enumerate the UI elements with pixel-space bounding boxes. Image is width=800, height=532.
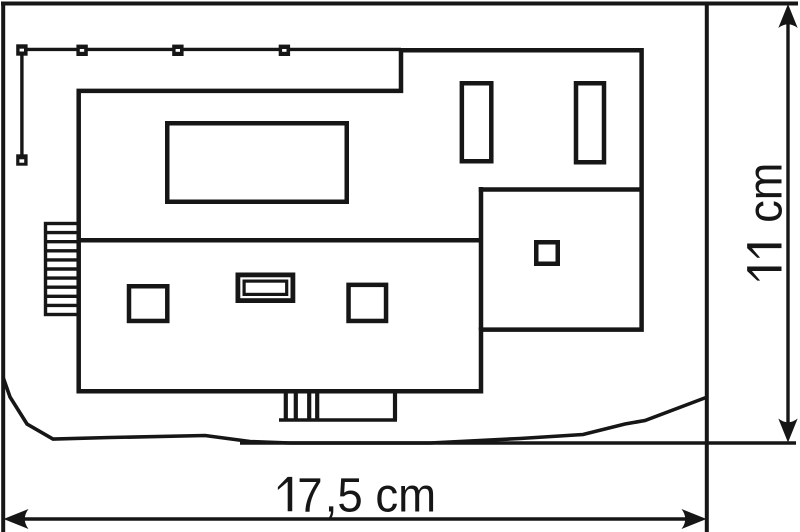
svg-text:7: 7 [297,468,322,521]
svg-text:cm: cm [738,163,792,223]
svg-text:,5 cm: ,5 cm [325,468,436,521]
